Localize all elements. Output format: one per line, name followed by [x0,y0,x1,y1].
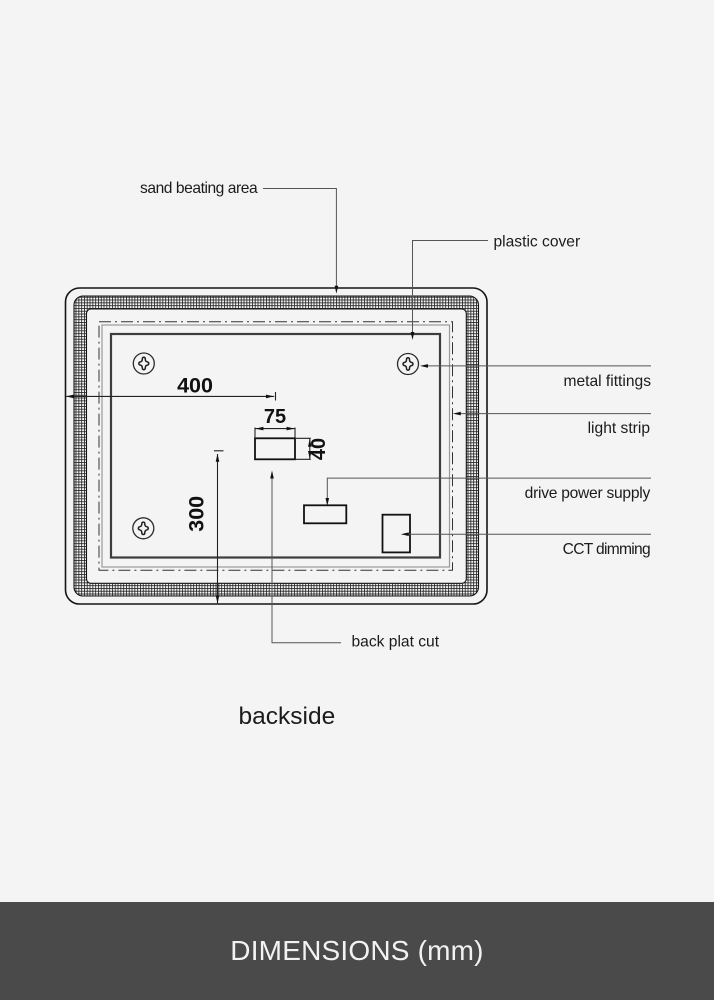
svg-text:sand beating area: sand beating area [140,180,258,197]
svg-text:light strip: light strip [588,420,651,437]
svg-text:metal fittings: metal fittings [563,373,651,390]
svg-text:drive power supply: drive power supply [525,485,651,502]
svg-text:back plat cut: back plat cut [352,634,440,651]
svg-text:75: 75 [264,406,286,428]
svg-text:CCT dimming: CCT dimming [563,541,650,558]
svg-text:backside: backside [239,703,336,730]
svg-text:40: 40 [308,438,330,460]
svg-text:plastic cover: plastic cover [494,233,581,250]
svg-text:400: 400 [177,373,213,397]
svg-text:300: 300 [185,496,209,532]
